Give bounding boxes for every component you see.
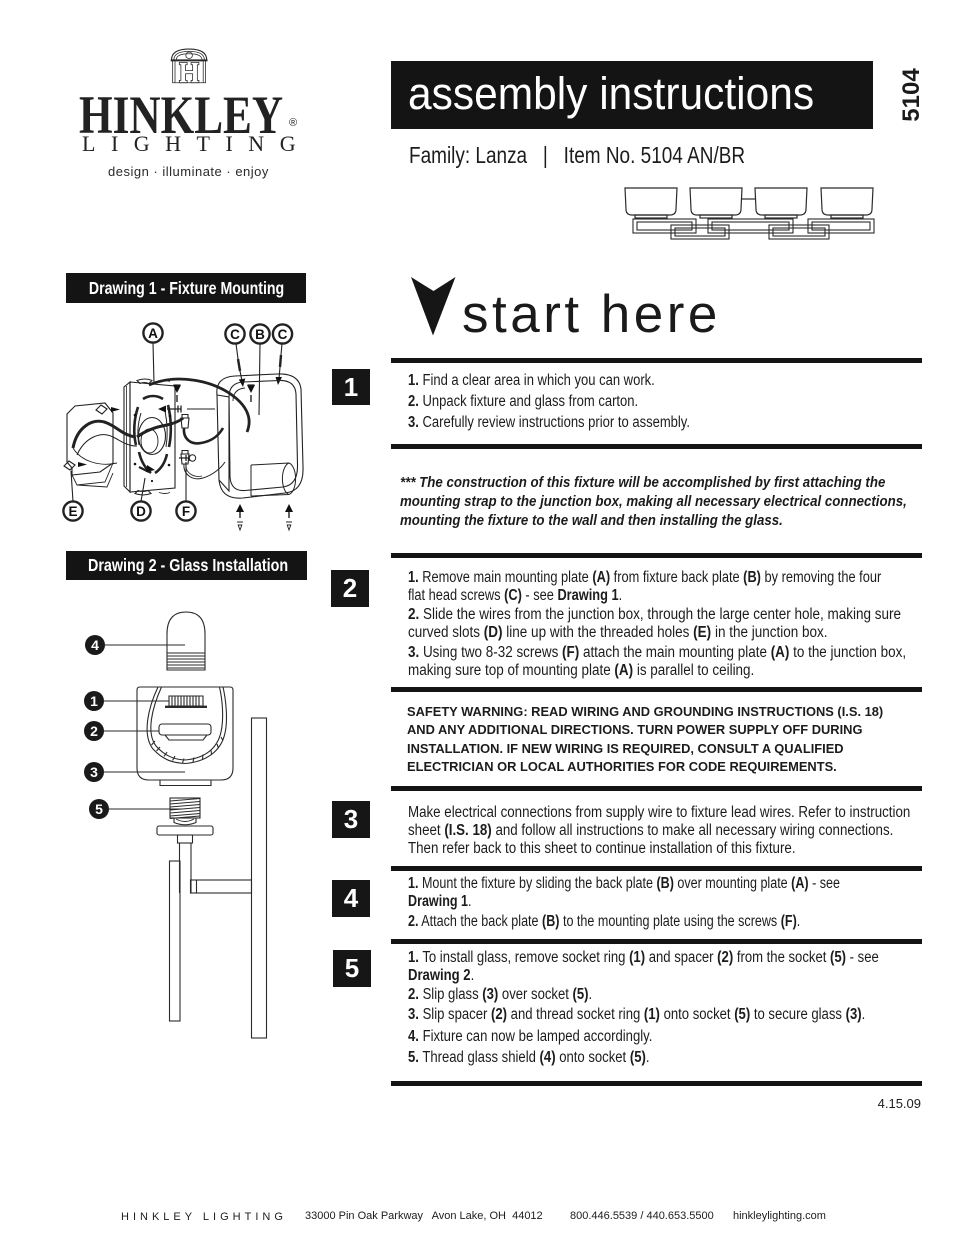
svg-text:A: A: [148, 326, 158, 341]
svg-text:1: 1: [90, 693, 98, 709]
svg-text:F: F: [182, 504, 190, 519]
svg-text:4: 4: [91, 637, 99, 653]
svg-text:2: 2: [90, 723, 98, 739]
svg-text:C: C: [278, 327, 288, 342]
svg-text:C: C: [230, 327, 240, 342]
svg-text:E: E: [68, 504, 77, 519]
svg-text:B: B: [255, 327, 265, 342]
svg-text:5: 5: [95, 801, 103, 817]
svg-text:3: 3: [90, 764, 98, 780]
svg-text:D: D: [136, 504, 146, 519]
